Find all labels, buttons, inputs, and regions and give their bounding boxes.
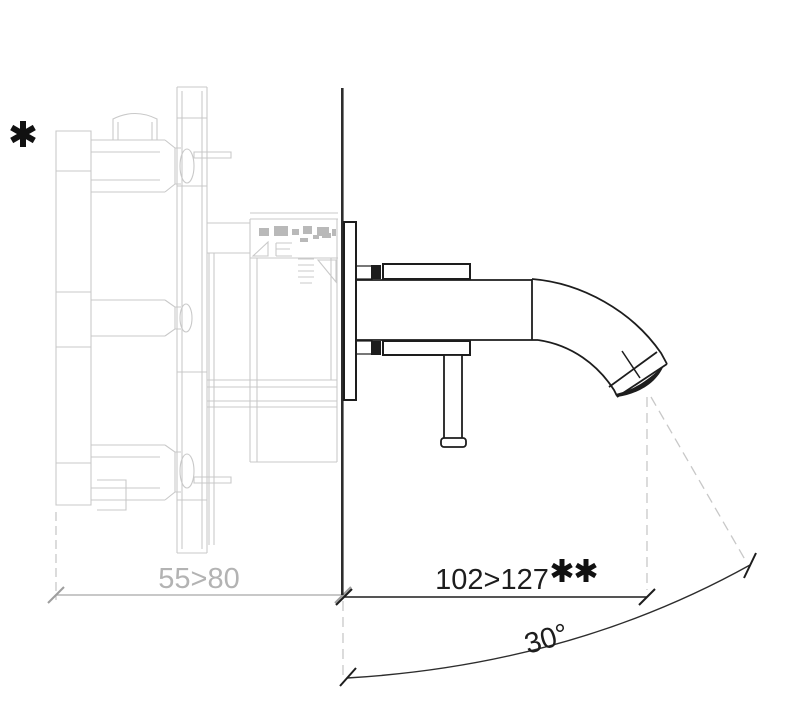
spout-bottom-nub — [371, 341, 381, 355]
dimension-concealed-depth: 55>80 — [48, 512, 351, 603]
connection-block — [250, 213, 338, 462]
triangle-mark-right — [318, 260, 336, 282]
bottom-cartridge — [91, 445, 181, 500]
aerator-cross-mark — [622, 351, 640, 378]
wall-plate — [344, 222, 356, 400]
spout-inner-curve — [538, 340, 617, 396]
angle-label: 30° — [521, 618, 572, 661]
spout-bottom-trim — [383, 341, 470, 355]
left-mounting-plate — [56, 131, 126, 510]
lever-handle — [441, 355, 466, 447]
e-shaped-mark — [276, 243, 292, 256]
drawing-svg: 55>80 102>127 — [0, 0, 800, 720]
spout-top-trim — [383, 264, 470, 279]
middle-cartridge — [91, 300, 181, 336]
concealed-valve-assembly — [56, 87, 338, 553]
riser-pipes — [209, 253, 214, 545]
technical-drawing-canvas: 55>80 102>127 — [0, 0, 800, 720]
top-cartridge-pin — [194, 152, 231, 158]
upper-arm — [207, 223, 250, 253]
spout-bottom-step — [356, 341, 372, 354]
spout-outer-curve — [532, 279, 667, 364]
spout — [356, 264, 667, 397]
handle-end-cap — [441, 438, 466, 447]
top-cartridge — [91, 140, 181, 192]
spout-top-nub — [371, 265, 381, 279]
asterisk-marker-icon — [12, 121, 35, 147]
bottom-cartridge-pin — [194, 477, 231, 483]
tip-diagonal-dashed — [651, 397, 747, 563]
connection-block-detail-marks — [259, 226, 336, 242]
spout-body — [356, 279, 538, 340]
triangle-mark-left — [253, 242, 268, 256]
lower-arm — [207, 380, 337, 407]
spring-symbol — [298, 259, 314, 283]
top-bracket — [113, 114, 157, 141]
handle-rod — [444, 355, 462, 439]
dimension-label-concealed-depth: 55>80 — [158, 563, 239, 595]
arc-tick-right — [744, 553, 756, 578]
dimension-label-spout-projection: 102>127 — [435, 564, 549, 596]
dimension-spout-projection: 102>127 — [336, 559, 655, 605]
double-asterisk-marker-icon — [553, 559, 596, 582]
spout-top-step — [356, 266, 372, 279]
